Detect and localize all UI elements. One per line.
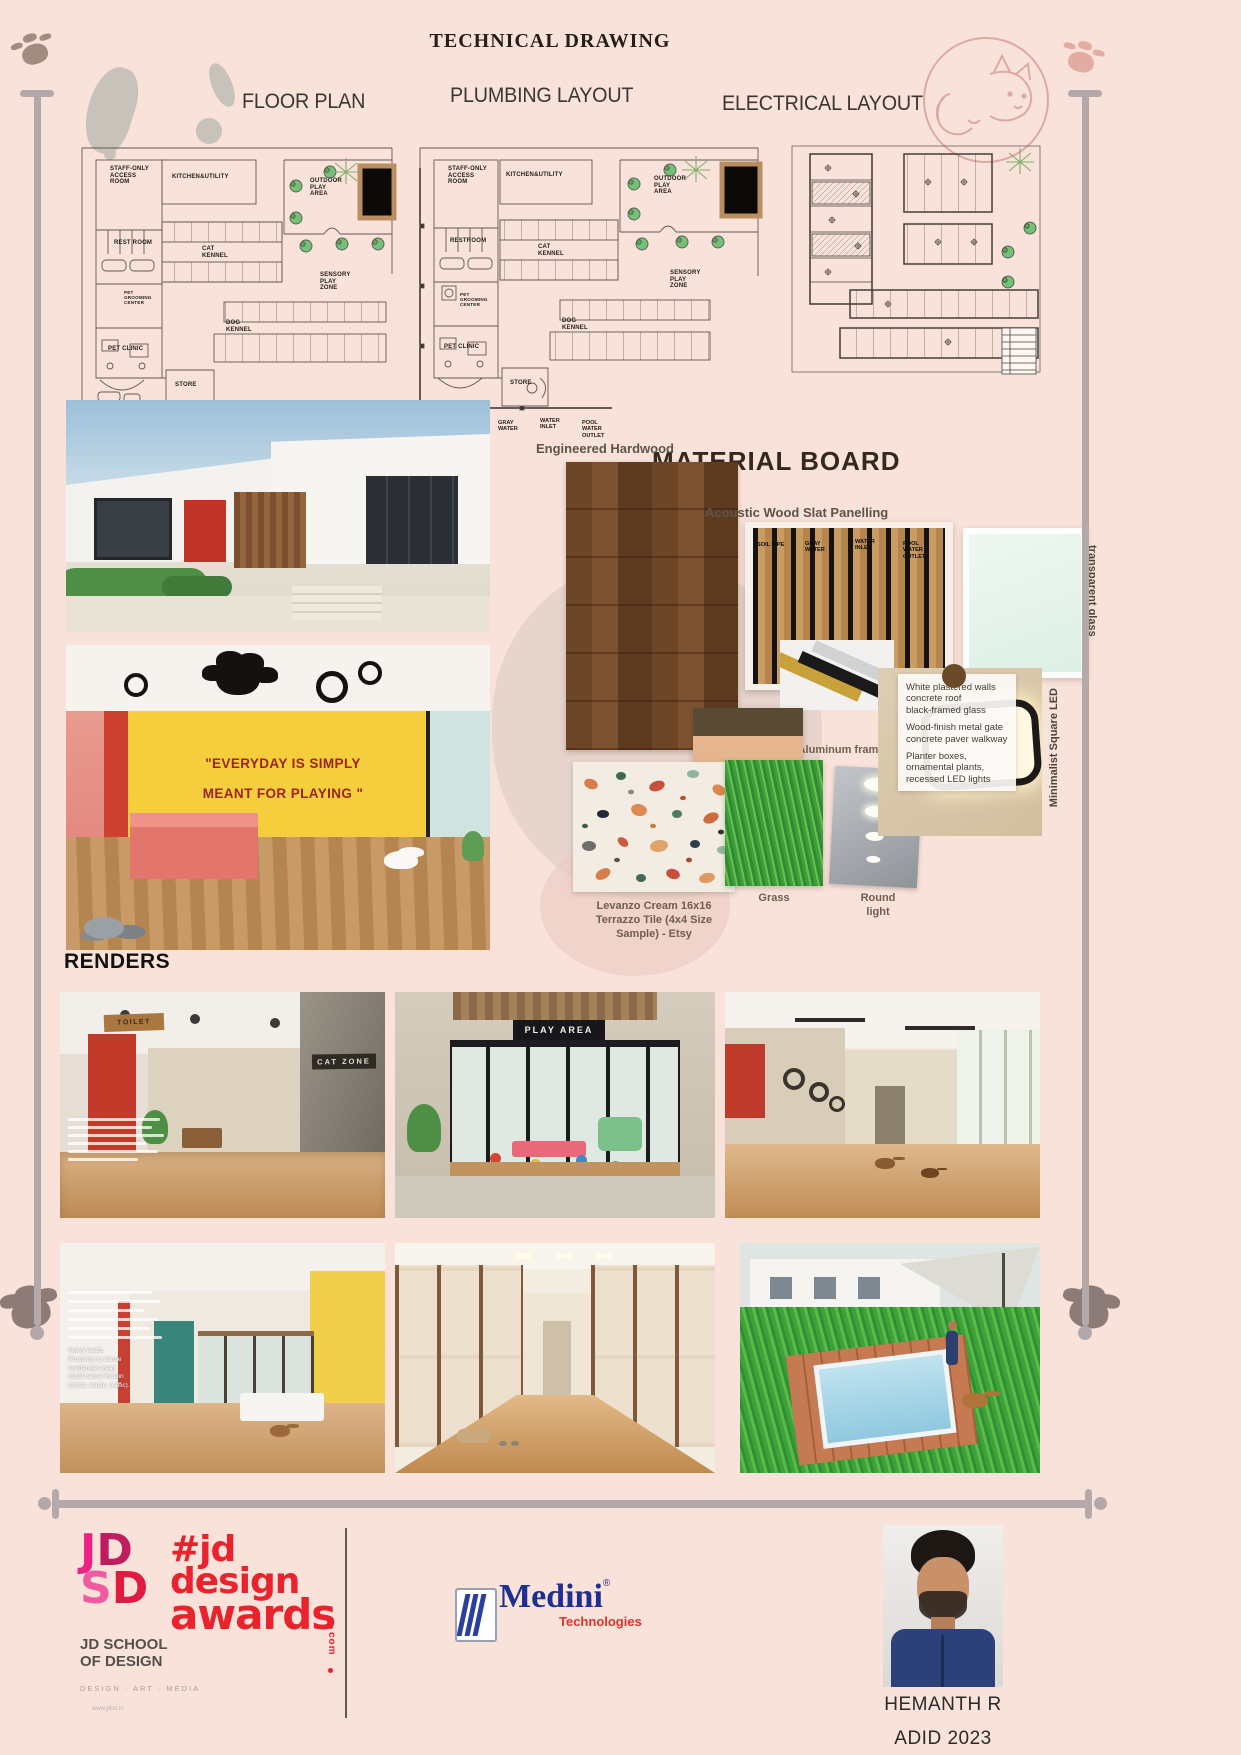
medini-icon xyxy=(455,1588,497,1642)
room-label-dog-kennel: DOG KENNEL xyxy=(562,318,588,331)
render-overlay-note: heavy loads. Proximity to dense resident… xyxy=(68,1347,188,1391)
toilet-sign: TOILET xyxy=(104,1013,165,1032)
round-ceiling-light xyxy=(358,661,382,685)
room-label-grooming: PET GROOMING CENTER xyxy=(460,292,488,307)
plant xyxy=(407,1104,441,1152)
person-figure xyxy=(946,1331,958,1365)
room-label-dog-kennel: DOG KENNEL xyxy=(226,320,252,333)
paw-print-icon xyxy=(1067,1295,1111,1331)
annotation-dot xyxy=(942,664,966,688)
frame-ball xyxy=(1078,1326,1092,1340)
electrical-layout-title: ELECTRICAL LAYOUT xyxy=(722,92,923,116)
photo-shirt xyxy=(891,1629,995,1687)
room-label-clinic: PET CLINIC xyxy=(108,346,143,353)
wood-gate xyxy=(234,492,306,568)
frame-cap xyxy=(52,1489,59,1519)
concrete-floor xyxy=(395,1176,715,1218)
room-label-restroom: REST ROOM xyxy=(114,240,152,247)
plumbing-legend-water-inlet: WATER INLET xyxy=(540,418,560,431)
red-wall xyxy=(102,711,128,843)
jd-letter-d2: D xyxy=(112,1563,149,1614)
room-label-sensory: SENSORY PLAY ZONE xyxy=(670,270,701,290)
ceiling-slats xyxy=(453,992,657,1020)
wood-floor xyxy=(725,1144,1040,1218)
jd-letter-s: S xyxy=(80,1563,112,1614)
pink-platform xyxy=(130,813,258,879)
slat-panelling-label: Acoustic Wood Slat Panelling xyxy=(705,505,888,520)
slat-overlay-pool-water-outlet: POOL WATER OUTLET xyxy=(903,541,925,560)
plant xyxy=(462,831,484,861)
slat-overlay-water-inlet: WATER INLET xyxy=(855,539,875,552)
hedge xyxy=(162,576,232,598)
stones xyxy=(84,917,124,939)
cat-zone-sign: CAT ZONE xyxy=(312,1053,376,1069)
square-led-label: Minimalist Square LED xyxy=(1048,688,1060,807)
table xyxy=(182,1128,222,1148)
room-label-store: STORE xyxy=(175,382,197,389)
medini-wordmark: Medini xyxy=(499,1578,603,1615)
render-play-area: PLAY AREA xyxy=(395,992,715,1218)
round-ceiling-light xyxy=(124,673,148,697)
frame-left-bar xyxy=(34,94,41,1326)
frame-ball xyxy=(1094,1497,1107,1510)
room-label-restroom: RESTROOM xyxy=(450,238,486,245)
terrazzo-sample xyxy=(573,762,735,892)
toilet-sign-text: TOILET xyxy=(117,1018,151,1026)
textured-wall xyxy=(300,992,385,1164)
author-name: HEMANTH R xyxy=(858,1694,1028,1716)
jd-school-name: JD SCHOOL OF DESIGN xyxy=(80,1636,168,1671)
interior-render-image: "EVERYDAY IS SIMPLY MEANT FOR PLAYING " xyxy=(66,645,490,950)
room-label-store: STORE xyxy=(510,380,532,387)
shirt-zipper xyxy=(941,1635,944,1687)
render-corridor-cat-zone: TOILET CAT ZONE xyxy=(60,992,385,1218)
porthole xyxy=(809,1082,829,1102)
window xyxy=(94,498,172,560)
back-wall xyxy=(148,1048,300,1152)
aluminum-frame-image xyxy=(780,640,894,710)
exterior-render-image xyxy=(66,400,490,632)
render-outdoor-pool xyxy=(740,1243,1040,1473)
play-structure xyxy=(598,1117,642,1151)
slat-overlay-gray-water: GRAY WATER xyxy=(805,541,825,554)
glass-sample xyxy=(963,528,1087,678)
pool xyxy=(813,1349,956,1449)
cat-zone-sign-text: CAT ZONE xyxy=(317,1057,371,1067)
pet-bed xyxy=(457,1429,491,1443)
render-hall xyxy=(725,992,1040,1218)
floor-plan-drawing: STAFF-ONLY ACCESS ROOM KITCHEN&UTILITY O… xyxy=(72,126,402,428)
dog-figure xyxy=(875,1158,895,1169)
glass-wall xyxy=(450,1040,680,1179)
awards-com: com xyxy=(326,1632,337,1656)
person-head xyxy=(948,1321,957,1330)
annotation-p2: Wood-finish metal gate concrete paver wa… xyxy=(906,722,1010,745)
play-area-sign: PLAY AREA xyxy=(513,1020,605,1040)
paw-print-icon xyxy=(1066,49,1096,75)
wood-floor xyxy=(60,1152,385,1218)
frame-right-bar xyxy=(1082,94,1089,1326)
light-oval xyxy=(866,856,880,864)
electrical-layout-drawing xyxy=(788,132,1046,384)
palette-swatch-1 xyxy=(693,708,803,736)
red-accent xyxy=(725,1044,765,1118)
presentation-board: TECHNICAL DRAWING FLOOR PLAN PLUMBING LA… xyxy=(0,0,1241,1755)
frame-ball xyxy=(38,1497,51,1510)
plumbing-layout-title: PLUMBING LAYOUT xyxy=(450,84,633,108)
porthole xyxy=(783,1068,805,1090)
play-area-sign-text: PLAY AREA xyxy=(525,1025,594,1035)
render-glass-partitions: heavy loads. Proximity to dense resident… xyxy=(60,1243,385,1473)
hardwood-label: Engineered Hardwood xyxy=(536,441,674,456)
room-label-clinic: PET CLINIC xyxy=(444,344,479,351)
interior-quote: "EVERYDAY IS SIMPLY MEANT FOR PLAYING " xyxy=(158,741,408,801)
awards-com-dot xyxy=(328,1668,333,1673)
terrazzo-label: Levanzo Cream 16x16 Terrazzo Tile (4x4 S… xyxy=(548,900,760,941)
room-label-staff: STAFF-ONLY ACCESS ROOM xyxy=(448,166,487,186)
white-platform xyxy=(240,1393,324,1421)
room-label-cat-kennel: CAT KENNEL xyxy=(538,244,564,257)
food-bowls xyxy=(499,1441,507,1446)
grass-label: Grass xyxy=(720,892,828,906)
grass-sample xyxy=(725,760,823,886)
linear-light xyxy=(795,1018,865,1022)
room-label-outdoor: OUTDOOR PLAY AREA xyxy=(654,176,686,196)
awards-line-awards: awards xyxy=(170,1597,335,1634)
porthole xyxy=(829,1096,845,1112)
quote-line-2: MEANT FOR PLAYING " xyxy=(203,786,364,801)
ground xyxy=(66,596,490,632)
pink-mat xyxy=(512,1141,586,1157)
round-ceiling-light xyxy=(316,671,348,703)
author-photo xyxy=(883,1525,1003,1687)
render-kennel-corridor xyxy=(395,1243,715,1473)
glass-panel xyxy=(366,476,458,564)
quote-line-1: "EVERYDAY IS SIMPLY xyxy=(205,756,361,771)
annotation-card: White plastered walls concrete roof blac… xyxy=(898,674,1016,791)
author-batch: ADID 2023 xyxy=(858,1728,1028,1750)
frame-ball xyxy=(30,1326,44,1340)
jd-design-awards-logo: #jd design awards xyxy=(170,1534,335,1634)
jd-school-url: www.jdsd.in xyxy=(92,1706,124,1712)
wood-floor xyxy=(60,1403,385,1473)
plumbing-legend-gray-water: GRAY WATER xyxy=(498,420,518,433)
jd-school-logo: JD SD xyxy=(80,1532,166,1608)
aluminum-frame-label: Aluminum frame xyxy=(796,744,886,758)
end-door xyxy=(543,1321,571,1395)
page-title: TECHNICAL DRAWING xyxy=(0,30,1100,53)
room-label-grooming: PET GROOMING CENTER xyxy=(124,290,152,305)
decor-blob xyxy=(204,60,240,110)
awards-com-dot xyxy=(328,1624,333,1629)
jd-school-line1: JD SCHOOL xyxy=(80,1636,168,1653)
room-label-outdoor: OUTDOOR PLAY AREA xyxy=(310,178,342,198)
room-label-kitchen: KITCHEN&UTILITY xyxy=(172,174,229,181)
plumbing-legend-pool-water-outlet: POOL WATER OUTLET xyxy=(582,420,604,439)
dog-figure xyxy=(270,1425,290,1437)
doorway xyxy=(875,1086,905,1144)
frame-cap xyxy=(1085,1489,1092,1519)
medini-registered: ® xyxy=(603,1578,610,1589)
frame-bottom-bar xyxy=(56,1500,1088,1508)
floor-plan-title: FLOOR PLAN xyxy=(242,90,365,114)
walkway xyxy=(292,586,382,620)
red-accent-wall xyxy=(184,500,226,562)
room-label-sensory: SENSORY PLAY ZONE xyxy=(320,272,351,292)
building-window xyxy=(770,1277,792,1299)
white-dog-figure xyxy=(384,851,418,869)
renders-title: RENDERS xyxy=(64,950,170,974)
round-light-label: Round light xyxy=(838,892,918,920)
medini-technologies: Technologies xyxy=(559,1614,699,1629)
paw-ceiling-lamp xyxy=(216,659,260,695)
ceiling-light xyxy=(515,1253,531,1259)
dog-figure xyxy=(921,1168,939,1178)
slat-overlay-soil-pipe: SOIL PIPE xyxy=(757,542,784,548)
jd-school-line2: OF DESIGN xyxy=(80,1653,163,1670)
annotation-p3: Planter boxes, ornamental plants, recess… xyxy=(906,751,1010,785)
paw-print-icon xyxy=(9,1295,53,1331)
dog-figure xyxy=(962,1393,988,1408)
room-label-staff: STAFF-ONLY ACCESS ROOM xyxy=(110,166,149,186)
jd-school-tagline: DESIGN · ART · MEDIA xyxy=(80,1684,200,1693)
footer-divider xyxy=(345,1528,347,1718)
room-label-cat-kennel: CAT KENNEL xyxy=(202,246,228,259)
room-label-kitchen: KITCHEN&UTILITY xyxy=(506,172,563,179)
